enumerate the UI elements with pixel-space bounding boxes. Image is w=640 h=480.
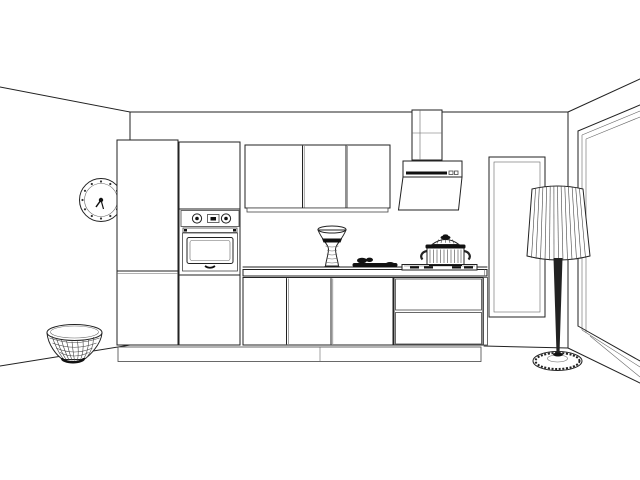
pot-handle bbox=[421, 251, 427, 260]
lamp-stem bbox=[554, 258, 563, 353]
kitchen-wireframe-svg bbox=[0, 0, 640, 480]
tall-cabinet bbox=[117, 140, 178, 345]
base-cabinets bbox=[243, 278, 393, 346]
render-canvas bbox=[0, 0, 640, 480]
drawer-unit bbox=[394, 278, 488, 346]
oven bbox=[181, 211, 239, 272]
range-hood bbox=[399, 110, 463, 210]
vase bbox=[318, 226, 346, 267]
wall-cabinets bbox=[245, 145, 390, 212]
wall-clock bbox=[80, 179, 123, 222]
cooking-pot bbox=[421, 234, 470, 266]
counter-tray bbox=[353, 258, 398, 267]
oven-column bbox=[179, 142, 240, 345]
wicker-basket bbox=[47, 325, 102, 363]
plinth bbox=[118, 347, 481, 362]
pot-handle bbox=[464, 251, 470, 260]
